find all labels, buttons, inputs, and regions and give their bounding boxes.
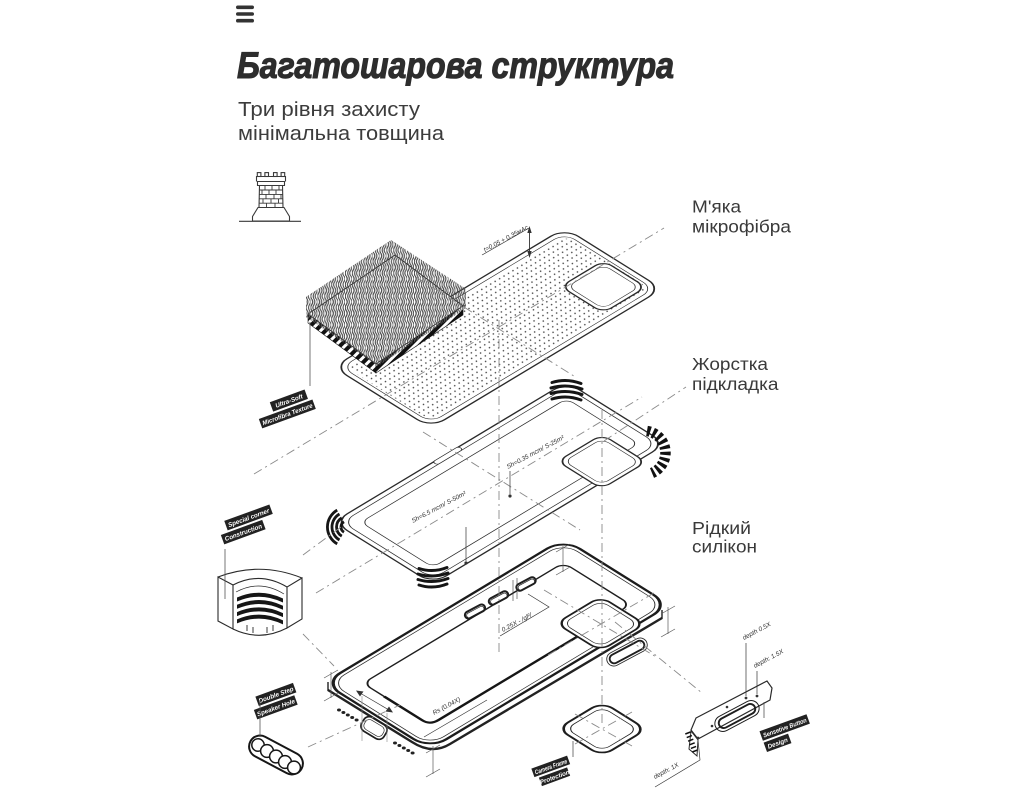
- svg-text:силікон: силікон: [692, 537, 757, 557]
- svg-text:Три рівня захисту: Три рівня захисту: [238, 99, 420, 121]
- svg-text:t=0.05 + 0.35мАс: t=0.05 + 0.35мАс: [483, 224, 531, 254]
- svg-text:depth 0.5X: depth 0.5X: [742, 621, 773, 642]
- svg-text:Жорстка: Жорстка: [692, 354, 768, 374]
- svg-text:М'яка: М'яка: [692, 197, 741, 217]
- svg-text:Рідкий: Рідкий: [692, 518, 751, 538]
- svg-text:мікрофібра: мікрофібра: [692, 217, 791, 237]
- svg-text:підкладка: підкладка: [692, 374, 779, 394]
- svg-text:depth: 1X: depth: 1X: [653, 761, 681, 780]
- svg-text:мінімальна товщина: мінімальна товщина: [238, 123, 445, 145]
- svg-text:Багатошарова структура: Багатошарова структура: [237, 45, 674, 86]
- svg-text:depth: 1.5X: depth: 1.5X: [753, 648, 786, 670]
